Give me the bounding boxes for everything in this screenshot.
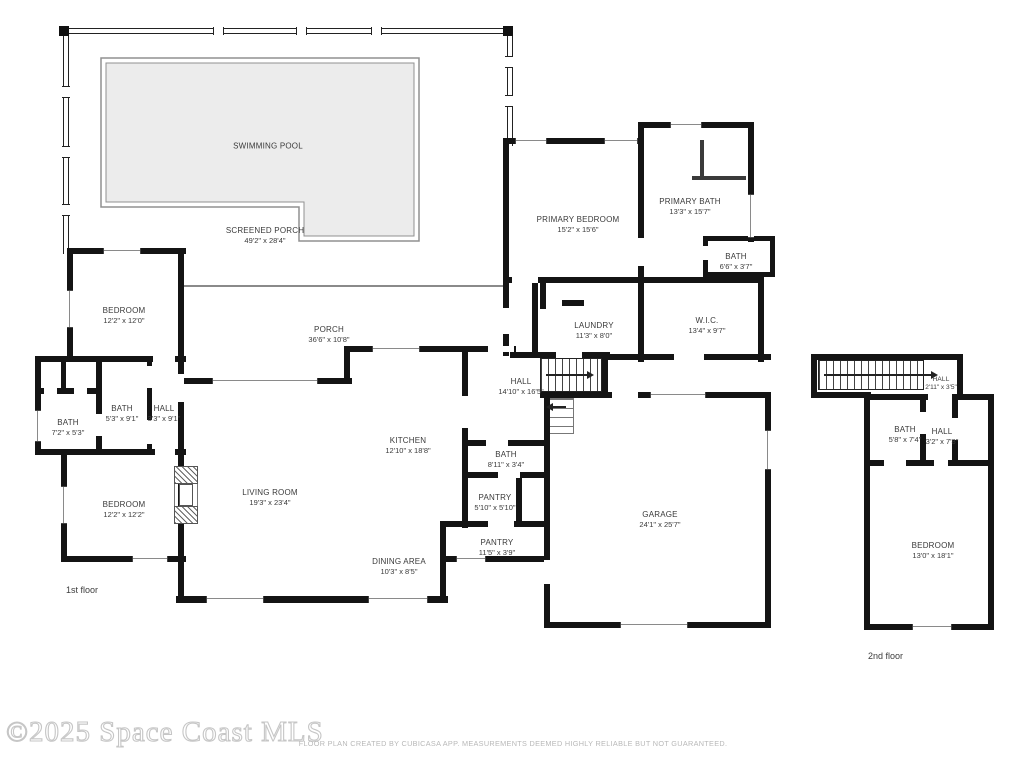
room-label-bath-wc: BATH 6'6" x 3'7" [720, 252, 753, 271]
wall [811, 392, 871, 398]
window-mark [213, 27, 224, 35]
door-opening [147, 420, 152, 444]
room-label-laundry: LAUNDRY 11'3" x 8'0" [574, 321, 614, 340]
door-opening [178, 374, 184, 402]
window [912, 624, 952, 630]
first-floor-label: 1st floor [66, 585, 98, 595]
door-opening [884, 460, 906, 466]
room-name: HALL [498, 377, 543, 387]
wall [703, 236, 775, 241]
stair-direction-arrow [546, 374, 592, 376]
room-label-screened-porch: SCREENED PORCH 49'2" x 28'4" [226, 226, 304, 245]
window-mark [62, 204, 70, 216]
fireplace-hatch [174, 466, 198, 484]
window [103, 248, 141, 254]
porch-post [503, 26, 513, 36]
room-dims: 24'1" x 25'7" [639, 519, 680, 528]
room-name: BATH [106, 404, 139, 414]
window [212, 378, 318, 384]
room-name: PORCH [308, 325, 349, 335]
room-dims: 5'3" x 9'1" [106, 413, 139, 422]
door-opening [153, 356, 175, 362]
fireplace-firebox [179, 484, 193, 506]
room-name: BATH [488, 450, 524, 460]
room-name: PANTRY [474, 493, 515, 503]
window [206, 596, 264, 603]
room-label-living-room: LIVING ROOM 19'3" x 23'4" [242, 488, 298, 507]
room-name: PRIMARY BEDROOM [537, 215, 620, 225]
wall [703, 236, 708, 246]
room-name: BATH [889, 425, 922, 435]
room-dims: 3'2" x 7'8" [926, 436, 959, 445]
room-label-bedroom-nw: BEDROOM 12'2" x 12'0" [103, 306, 146, 325]
door-opening [486, 440, 508, 446]
fireplace-hatch [174, 506, 198, 524]
wall [562, 300, 584, 306]
room-name: HALL [926, 427, 959, 437]
room-label-hall-main: HALL 14'10" x 16'5" [498, 377, 543, 396]
room-label-bath-up: BATH 5'8" x 7'4" [889, 425, 922, 444]
room-label-hall-west: HALL 3'3" x 9'1" [148, 404, 181, 423]
second-floor-label: 2nd floor [868, 651, 903, 661]
room-dims: 49'2" x 28'4" [226, 235, 304, 244]
stair-direction-arrow [824, 374, 936, 376]
wall [178, 248, 184, 602]
exterior-door [456, 556, 486, 562]
window [61, 486, 67, 524]
window [132, 556, 168, 562]
disclaimer-text: FLOOR PLAN CREATED BY CUBICASA APP. MEAS… [299, 739, 728, 748]
room-label-hall-up-small: HALL 2'11" x 3'5" [925, 376, 957, 392]
window-mark [505, 95, 513, 107]
room-label-bath-72: BATH 7'2" x 5'3" [52, 418, 85, 437]
door-opening [674, 354, 704, 360]
door-opening [928, 394, 952, 400]
wall [516, 472, 522, 527]
room-label-porch: PORCH 36'6" x 10'8" [308, 325, 349, 344]
room-dims: 10'3" x 8'5" [372, 566, 426, 575]
room-name: GARAGE [639, 510, 680, 520]
window-mark [296, 27, 307, 35]
stair-direction-arrow [548, 406, 566, 408]
room-dims: 14'10" x 16'5" [498, 386, 543, 395]
door-opening [96, 414, 102, 436]
shower-partition [700, 140, 704, 180]
room-dims: 13'4" x 9'7" [689, 325, 726, 334]
room-name: HALL [925, 376, 957, 384]
wall [540, 283, 546, 309]
window [765, 430, 771, 470]
room-name: KITCHEN [385, 436, 430, 446]
door-opening [544, 560, 550, 584]
room-label-bedroom-up: BEDROOM 13'0" x 18'1" [912, 541, 955, 560]
room-dims: 12'2" x 12'0" [103, 315, 146, 324]
room-label-garage: GARAGE 24'1" x 25'7" [639, 510, 680, 529]
screen-wall [63, 28, 69, 254]
room-dims: 13'0" x 18'1" [912, 550, 955, 559]
room-dims: 5'10" x 5'10" [474, 502, 515, 511]
room-name: BEDROOM [103, 500, 146, 510]
wall [462, 346, 468, 528]
window [748, 194, 754, 238]
screen-wall [507, 28, 513, 146]
door-opening [488, 346, 514, 352]
room-dims: 7'2" x 5'3" [52, 427, 85, 436]
room-dims: 12'10" x 18'8" [385, 445, 430, 454]
window [35, 410, 41, 442]
room-name: BEDROOM [103, 306, 146, 316]
room-name: SCREENED PORCH [226, 226, 304, 236]
room-name: LIVING ROOM [242, 488, 298, 498]
room-name: BEDROOM [912, 541, 955, 551]
door-opening [74, 388, 87, 394]
window-mark [371, 27, 382, 35]
wall [544, 392, 550, 628]
window-mark [62, 146, 70, 158]
mls-watermark: ©2025 Space Coast MLS [6, 716, 324, 749]
door-opening [147, 366, 152, 388]
bath-partition [692, 176, 746, 180]
door-opening [556, 352, 582, 358]
room-label-primary-bath: PRIMARY BATH 13'3" x 15'7" [659, 197, 721, 216]
wall [638, 283, 644, 362]
room-dims: 8'11" x 3'4" [488, 459, 524, 468]
room-label-kitchen: KITCHEN 12'10" x 18'8" [385, 436, 430, 455]
room-label-wic: W.I.C. 13'4" x 9'7" [689, 316, 726, 335]
door-opening [462, 396, 468, 428]
garage-door [620, 622, 688, 628]
wall [440, 521, 446, 603]
room-name: LAUNDRY [574, 321, 614, 331]
room-dims: 11'3" x 8'0" [574, 330, 614, 339]
wall [96, 356, 102, 455]
room-dims: 11'5" x 3'9" [479, 547, 515, 556]
window [650, 392, 706, 398]
room-label-swimming-pool: SWIMMING POOL [233, 141, 303, 151]
window-mark [62, 86, 70, 98]
room-label-bath-53: BATH 5'3" x 9'1" [106, 404, 139, 423]
window [67, 290, 73, 328]
screen-wall [63, 28, 513, 34]
room-dims: 13'3" x 15'7" [659, 206, 721, 215]
wall [864, 394, 870, 630]
wall [532, 283, 538, 356]
window [604, 138, 638, 144]
room-name: BATH [52, 418, 85, 428]
wall [988, 394, 994, 630]
door-opening [488, 521, 514, 527]
wall [770, 236, 775, 277]
room-dims: 3'3" x 9'1" [148, 413, 181, 422]
room-label-hall-up: HALL 3'2" x 7'8" [926, 427, 959, 446]
room-dims: 19'3" x 23'4" [242, 497, 298, 506]
room-dims: 36'6" x 10'8" [308, 334, 349, 343]
window [670, 122, 702, 128]
room-dims: 15'2" x 15'6" [537, 224, 620, 233]
floor-plan: SWIMMING POOL SCREENED PORCH 49'2" x 28'… [0, 0, 1024, 768]
door-opening [155, 449, 175, 455]
room-label-bedroom-sw: BEDROOM 12'2" x 12'2" [103, 500, 146, 519]
door-opening [934, 460, 948, 466]
room-name: PRIMARY BATH [659, 197, 721, 207]
room-label-dining: DINING AREA 10'3" x 8'5" [372, 557, 426, 576]
room-name: PANTRY [479, 538, 515, 548]
porch-post [59, 26, 69, 36]
window [372, 346, 420, 352]
door-opening [612, 392, 638, 398]
door-opening [638, 238, 644, 266]
room-name: SWIMMING POOL [233, 141, 303, 151]
door-opening [498, 472, 520, 478]
room-name: BATH [720, 252, 753, 262]
room-name: DINING AREA [372, 557, 426, 567]
room-dims: 6'6" x 3'7" [720, 261, 753, 270]
wall [758, 272, 764, 362]
room-dims: 12'2" x 12'2" [103, 509, 146, 518]
window [368, 596, 428, 603]
wall [703, 260, 708, 277]
door-opening [512, 277, 538, 283]
room-label-pantry-long: PANTRY 11'5" x 3'9" [479, 538, 515, 557]
room-label-pantry-small: PANTRY 5'10" x 5'10" [474, 493, 515, 512]
wall [765, 392, 771, 628]
room-label-primary-bedroom: PRIMARY BEDROOM 15'2" x 15'6" [537, 215, 620, 234]
room-name: HALL [148, 404, 181, 414]
room-label-bath-hall: BATH 8'11" x 3'4" [488, 450, 524, 469]
room-dims: 5'8" x 7'4" [889, 434, 922, 443]
door-opening [44, 388, 57, 394]
window [515, 138, 547, 144]
wall [703, 272, 775, 277]
room-name: W.I.C. [689, 316, 726, 326]
porch-boundary-line [184, 285, 508, 287]
door-opening [503, 308, 509, 334]
window-mark [505, 56, 513, 68]
room-dims: 2'11" x 3'5" [925, 384, 957, 392]
